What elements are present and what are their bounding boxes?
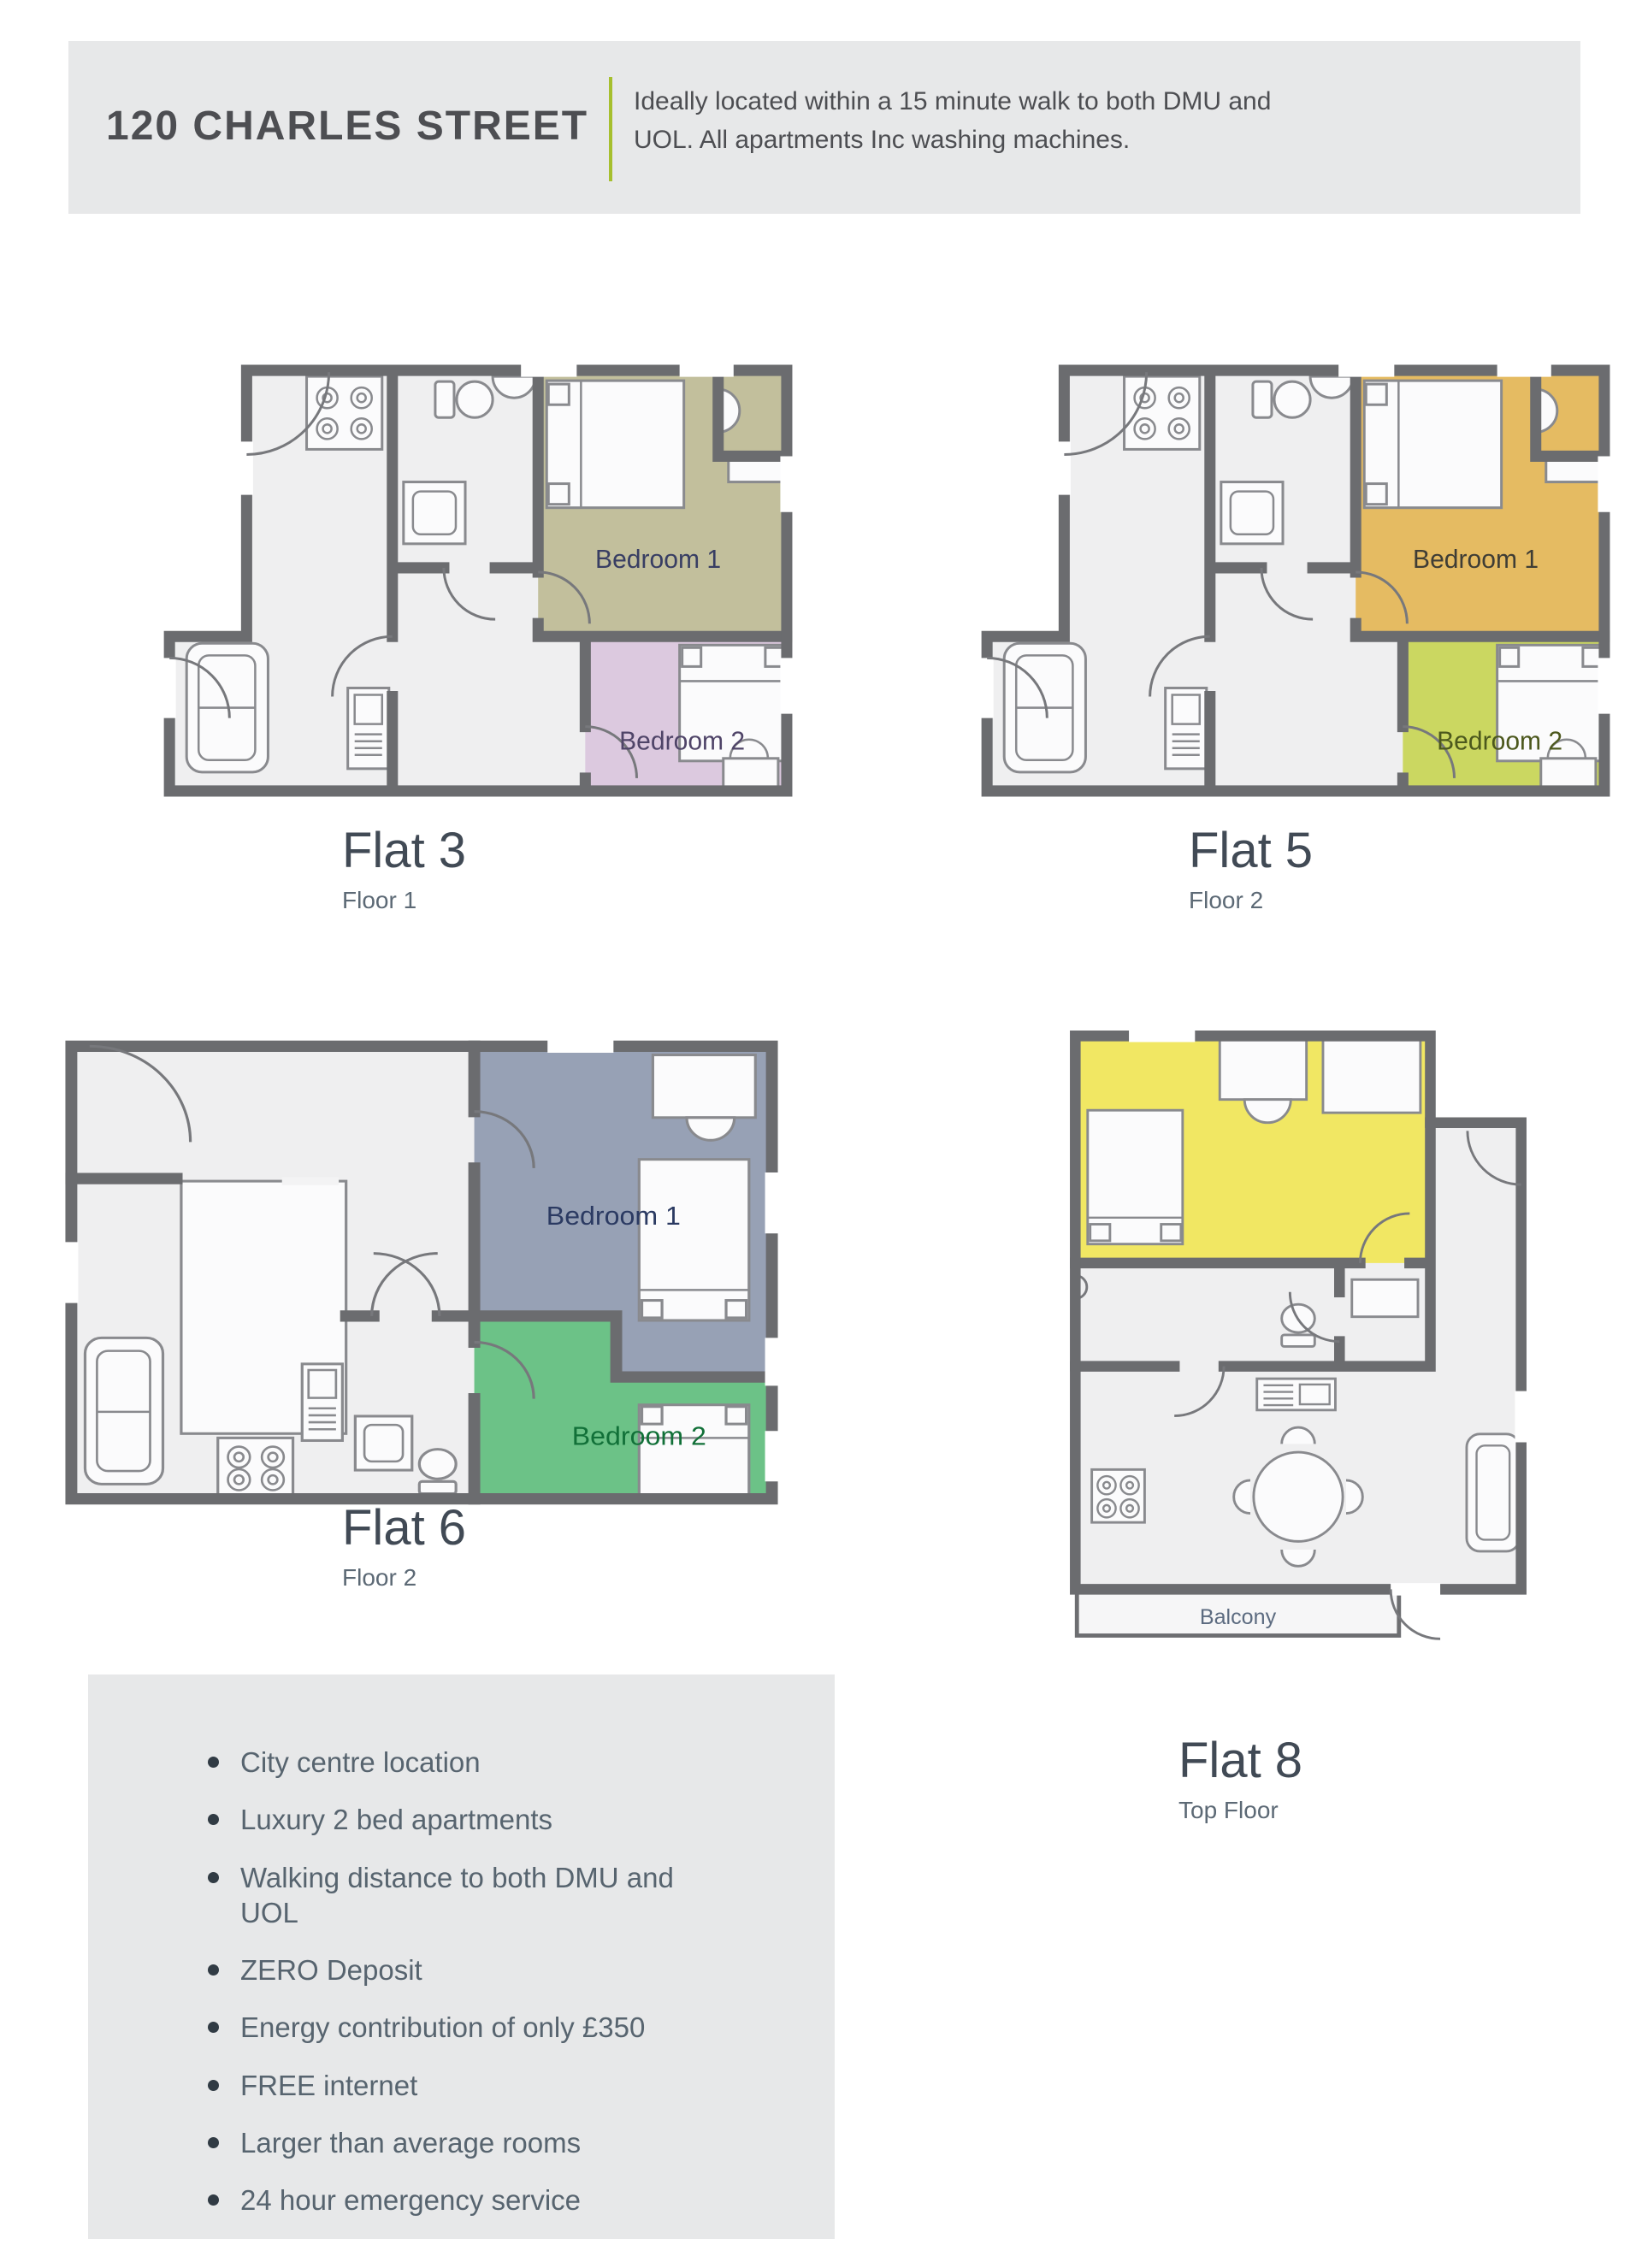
bed-icon xyxy=(639,1160,748,1320)
table-icon xyxy=(1546,459,1601,481)
cabinet-icon xyxy=(348,688,389,768)
feature-item: ZERO Deposit xyxy=(208,1952,719,1987)
flat6-name: Flat 6 xyxy=(342,1503,466,1553)
features-list: City centre location Luxury 2 bed apartm… xyxy=(88,1674,835,2218)
stove-icon xyxy=(1092,1469,1145,1522)
header-description: Ideally located within a 15 minute walk … xyxy=(634,82,1309,159)
bed-icon xyxy=(639,1405,748,1497)
flat3-label: Flat 3 Floor 1 xyxy=(342,826,466,914)
features-panel: City centre location Luxury 2 bed apartm… xyxy=(88,1674,835,2239)
flat6-floorplan: Bedroom 1 Bedroom 2 xyxy=(53,1029,790,1516)
table-icon xyxy=(1323,1040,1421,1113)
bed-icon xyxy=(546,381,683,508)
feature-item: City centre location xyxy=(208,1745,719,1780)
page-title: 120 CHARLES STREET xyxy=(106,103,588,150)
wardrobe-icon xyxy=(653,1055,755,1118)
toilet-icon xyxy=(435,381,493,417)
flat8-floorplan: Balcony xyxy=(1059,1019,1538,1647)
feature-item: Energy contribution of only £350 xyxy=(208,2010,719,2045)
flat8-floor-label: Top Floor xyxy=(1178,1797,1302,1824)
shower-icon xyxy=(355,1416,411,1470)
toilet-icon xyxy=(1253,381,1310,417)
bed-icon xyxy=(1364,381,1501,508)
header-divider xyxy=(609,77,612,181)
flat5-name: Flat 5 xyxy=(1189,826,1313,876)
stove-icon xyxy=(218,1438,293,1497)
header-panel: 120 CHARLES STREET Ideally located withi… xyxy=(68,41,1580,214)
flat8-name: Flat 8 xyxy=(1178,1736,1302,1786)
flat3-name: Flat 3 xyxy=(342,826,466,876)
sofa-icon xyxy=(1004,643,1085,772)
sofa-icon xyxy=(1467,1434,1520,1551)
flat6-floor-label: Floor 2 xyxy=(342,1564,466,1592)
bedroom1-label: Bedroom 1 xyxy=(595,546,721,574)
shower-icon xyxy=(1221,482,1283,544)
table-icon xyxy=(729,459,783,481)
toilet-icon xyxy=(419,1450,456,1494)
sofa-icon xyxy=(85,1338,162,1484)
bedroom1-label: Bedroom 1 xyxy=(546,1202,681,1231)
shelf-icon xyxy=(1352,1279,1418,1316)
bed-icon xyxy=(1088,1110,1183,1243)
feature-item: FREE internet xyxy=(208,2068,719,2103)
feature-item: Luxury 2 bed apartments xyxy=(208,1802,719,1837)
balcony-label: Balcony xyxy=(1200,1605,1277,1629)
sink-unit-icon xyxy=(1257,1379,1336,1410)
flat5-label: Flat 5 Floor 2 xyxy=(1189,826,1313,914)
feature-item: Larger than average rooms xyxy=(208,2125,719,2160)
flat3-floor-label: Floor 1 xyxy=(342,887,466,914)
feature-item: 24 hour emergency service xyxy=(208,2182,719,2218)
flat5-floor-label: Floor 2 xyxy=(1189,887,1313,914)
cabinet-icon xyxy=(1166,688,1207,768)
flat5-floorplan: Bedroom 1 Bedroom 2 xyxy=(936,353,1621,808)
flat3-floorplan: Bedroom 1 Bedroom 2 xyxy=(118,353,804,808)
sofa-icon xyxy=(186,643,268,772)
toilet-icon xyxy=(1282,1304,1315,1346)
cabinet-icon xyxy=(302,1364,342,1441)
brochure-page: 120 CHARLES STREET Ideally located withi… xyxy=(0,0,1642,2268)
bedroom2-label: Bedroom 2 xyxy=(572,1421,706,1450)
bedroom1-label: Bedroom 1 xyxy=(1413,546,1539,574)
flat6-label: Flat 6 Floor 2 xyxy=(342,1503,466,1592)
shower-icon xyxy=(404,482,465,544)
feature-item: Walking distance to both DMU and UOL xyxy=(208,1860,719,1931)
flat8-label: Flat 8 Top Floor xyxy=(1178,1736,1302,1824)
bedroom2-label: Bedroom 2 xyxy=(619,728,745,756)
bedroom2-label: Bedroom 2 xyxy=(1437,728,1562,756)
